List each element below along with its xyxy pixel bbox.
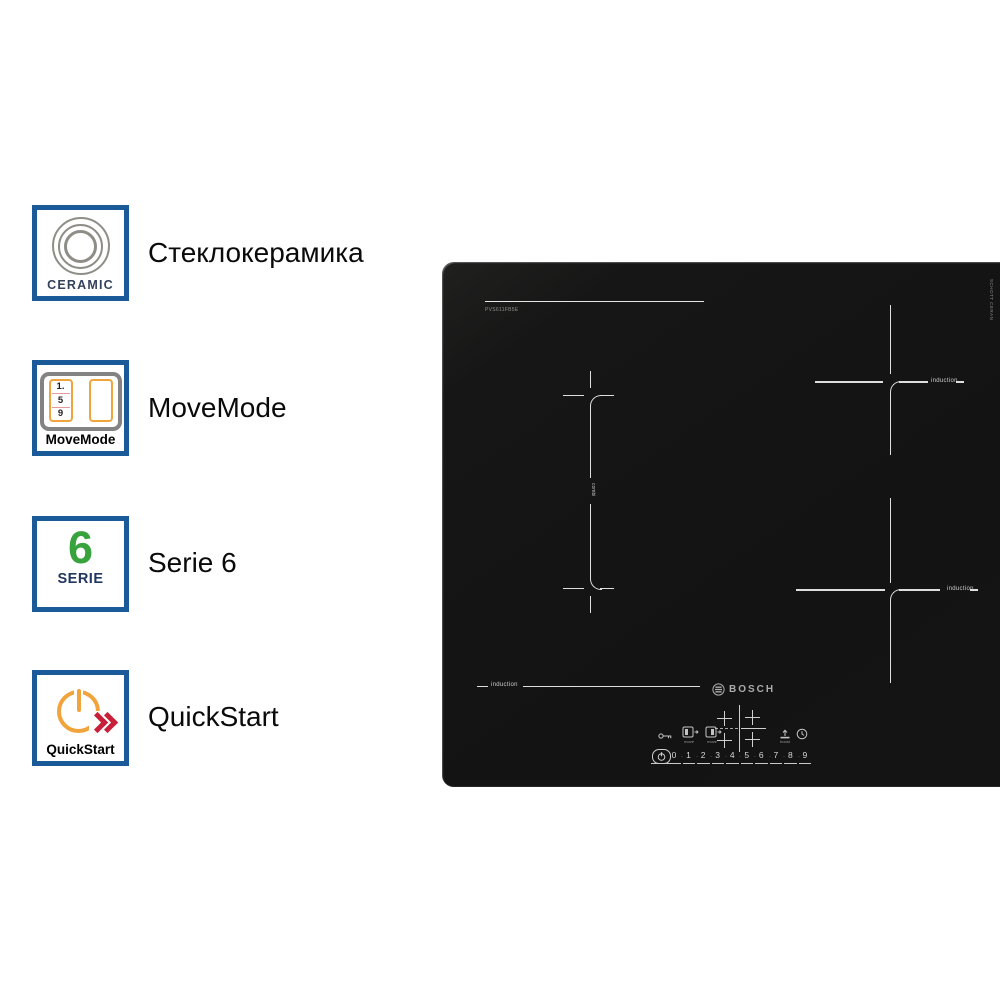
zone-br-line <box>890 600 891 683</box>
zone-br-line <box>890 498 891 583</box>
top-edge-line <box>485 301 704 302</box>
bosch-emblem-icon <box>712 683 725 696</box>
movemode-digit: 9 <box>58 409 63 419</box>
serie-caption: SERIE <box>57 571 103 587</box>
induction-cooktop: PVS611FB5E SCHOTT CERAN combi induction … <box>442 262 1000 787</box>
power-boost-icon <box>779 729 791 739</box>
slider-underline <box>784 763 797 764</box>
slider-underline <box>755 763 768 764</box>
zone-tr-line <box>899 381 928 382</box>
zone-left-label: induction <box>491 682 518 688</box>
digit-separator: · <box>797 752 801 762</box>
slider-digit: 2 <box>698 750 708 760</box>
movemode-pans-icon: 1. 5 9 <box>40 372 122 431</box>
product-image: CERAMIC Стеклокерамика 1. 5 9 MoveMode M… <box>0 0 1000 1000</box>
zone-select-plus-icon <box>745 732 760 747</box>
digit-separator: · <box>680 752 684 762</box>
zone-select-plus-icon <box>717 711 732 726</box>
flex-zone-tick <box>590 371 591 388</box>
zone-br-dash <box>970 589 978 590</box>
flex-zone-corner <box>590 395 602 407</box>
flex-zone-tick <box>590 596 591 613</box>
bosch-logo-text: BOSCH <box>729 684 775 695</box>
slider-underline <box>799 763 812 764</box>
zone-br-line <box>899 589 940 590</box>
slider-digit: 4 <box>727 750 737 760</box>
slider-digit: 5 <box>742 750 752 760</box>
flex-zone-line <box>600 395 614 396</box>
slider-digit: 0 <box>669 750 679 760</box>
ceramic-ring-middle <box>58 224 103 269</box>
label-serie: Serie 6 <box>148 547 237 579</box>
slider-underline <box>741 763 754 764</box>
move-left-label: move <box>680 739 698 744</box>
flex-zone-line <box>590 406 591 478</box>
slider-underline <box>668 763 681 764</box>
zone-left-dash <box>477 686 488 687</box>
badge-serie: 6 SERIE <box>32 516 129 612</box>
slider-underline <box>697 763 710 764</box>
timer-clock-icon <box>796 728 808 740</box>
selector-line <box>741 728 766 729</box>
slider-underline <box>726 763 739 764</box>
zone-tr-corner <box>890 381 902 393</box>
ceramic-caption: CERAMIC <box>37 278 124 292</box>
digit-separator: · <box>782 752 786 762</box>
zone-br-line <box>796 589 885 590</box>
badge-movemode: 1. 5 9 MoveMode <box>32 360 129 456</box>
quickstart-caption: QuickStart <box>37 742 124 757</box>
zone-tr-line <box>890 305 891 374</box>
zone-left-line <box>523 686 700 687</box>
label-quickstart: QuickStart <box>148 701 279 733</box>
label-movemode: MoveMode <box>148 392 287 424</box>
movemode-pan-left: 1. 5 9 <box>49 379 73 422</box>
slider-underline <box>683 763 696 764</box>
power-icon <box>656 751 667 762</box>
flex-zone-line <box>563 395 584 396</box>
zone-br-corner <box>890 589 902 601</box>
quickstart-powerline <box>77 689 82 712</box>
bosch-logo: BOSCH <box>712 683 775 696</box>
badge-ceramic: CERAMIC <box>32 205 129 301</box>
slider-digit: 3 <box>713 750 723 760</box>
digit-separator: · <box>695 752 699 762</box>
slider-digit: 9 <box>800 750 810 760</box>
slider-digit: 8 <box>785 750 795 760</box>
flex-zone-line <box>600 588 614 589</box>
movemode-digit: 5 <box>58 396 63 406</box>
flex-zone-label: combi <box>584 476 596 504</box>
slider-underline-row <box>668 763 811 764</box>
zone-tr-line <box>815 381 883 382</box>
slider-underline <box>770 763 783 764</box>
move-right-label: move <box>703 739 721 744</box>
digit-separator: · <box>709 752 713 762</box>
badge-quickstart: QuickStart <box>32 670 129 766</box>
boost-label: boost <box>776 739 794 744</box>
serie-number: 6 <box>68 523 93 573</box>
zone-select-plus-icon <box>745 710 760 725</box>
child-lock-key-icon <box>658 731 673 741</box>
digit-separator: · <box>753 752 757 762</box>
movemode-caption: MoveMode <box>37 432 124 447</box>
slider-digit: 1 <box>684 750 694 760</box>
ceramic-ring-inner <box>64 230 97 263</box>
flex-zone-line <box>563 588 584 589</box>
zone-tr-line <box>890 392 891 455</box>
move-pan-right-icon <box>705 726 722 738</box>
ceramic-rings-icon <box>52 217 110 275</box>
digit-separator: · <box>768 752 772 762</box>
movemode-pan-right <box>89 379 113 422</box>
slider-digit: 6 <box>756 750 766 760</box>
digit-separator: · <box>738 752 742 762</box>
label-ceramic: Стеклокерамика <box>148 237 364 269</box>
digit-separator: · <box>724 752 728 762</box>
flex-zone-line <box>590 504 591 578</box>
glass-edge-print: SCHOTT CERAN <box>989 279 994 320</box>
move-pan-left-icon <box>682 726 699 738</box>
slider-underline <box>651 763 669 764</box>
model-print: PVS611FB5E <box>485 307 518 313</box>
zone-tr-dash <box>956 381 964 382</box>
movemode-digit: 1. <box>57 382 65 392</box>
slider-underline <box>712 763 725 764</box>
zone-tr-label: induction <box>931 378 958 384</box>
slider-digit: 7 <box>771 750 781 760</box>
